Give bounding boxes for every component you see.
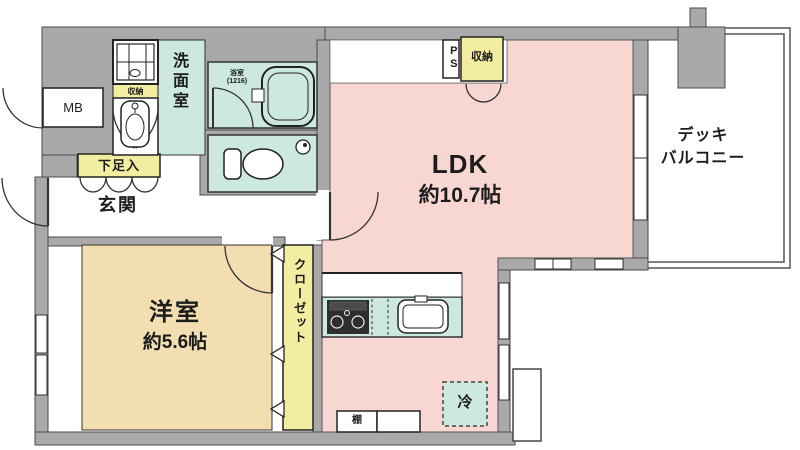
storage-top-label: 収納 [461, 51, 503, 65]
meter-box-label: MB [43, 100, 103, 116]
storage-wash-label: 収納 [113, 87, 158, 97]
stove-icon [327, 300, 369, 334]
entrance-label: 玄関 [58, 194, 178, 217]
kitchen-backsplash [322, 273, 462, 297]
balcony-label-line1: デッキ [622, 124, 784, 147]
outdoor-step [513, 369, 541, 441]
shoe-box-doors [80, 177, 158, 192]
corner-sink-icon [296, 140, 310, 154]
floorplan-drawing [0, 0, 800, 450]
floorplan-canvas: LDK 約10.7帖 洋室 約5.6帖 玄関 洗面室 クローゼット デッキ バル… [0, 0, 800, 450]
western-room-area: 約5.6帖 [90, 331, 260, 355]
washbasin-icon [121, 101, 149, 147]
balcony-label-line2: バルコニー [622, 147, 784, 170]
window-west-1 [36, 315, 47, 353]
window-east-2 [499, 345, 509, 400]
window-east-1 [499, 283, 509, 339]
ldk-name: LDK [340, 148, 580, 181]
shoe-box-label: 下足入 [78, 158, 160, 174]
western-room-label: 洋室 約5.6帖 [90, 298, 260, 355]
bathroom-label: 浴室 (1216) [213, 70, 261, 87]
ldk-area: 約10.7帖 [340, 183, 580, 209]
washroom-label: 洗面室 [168, 52, 188, 157]
bathroom-name: 浴室 [213, 70, 261, 78]
meter-box-door-arc [3, 88, 43, 128]
shelf-label: 棚 [337, 415, 377, 428]
ldk-floor [322, 40, 633, 432]
window-south-2 [595, 259, 623, 269]
western-room-name: 洋室 [90, 298, 260, 328]
fridge-label: 冷 [443, 394, 487, 413]
kitchen-sink-icon [398, 296, 448, 333]
bathroom-size-code: (1216) [213, 78, 261, 86]
ldk-label: LDK 約10.7帖 [340, 148, 580, 209]
closet-label: クローゼット [290, 258, 306, 423]
window-west-2 [36, 355, 47, 395]
balcony-label: デッキ バルコニー [622, 124, 784, 170]
pipe-shaft-label: PS [446, 45, 460, 75]
shelf-box-2 [377, 411, 420, 432]
